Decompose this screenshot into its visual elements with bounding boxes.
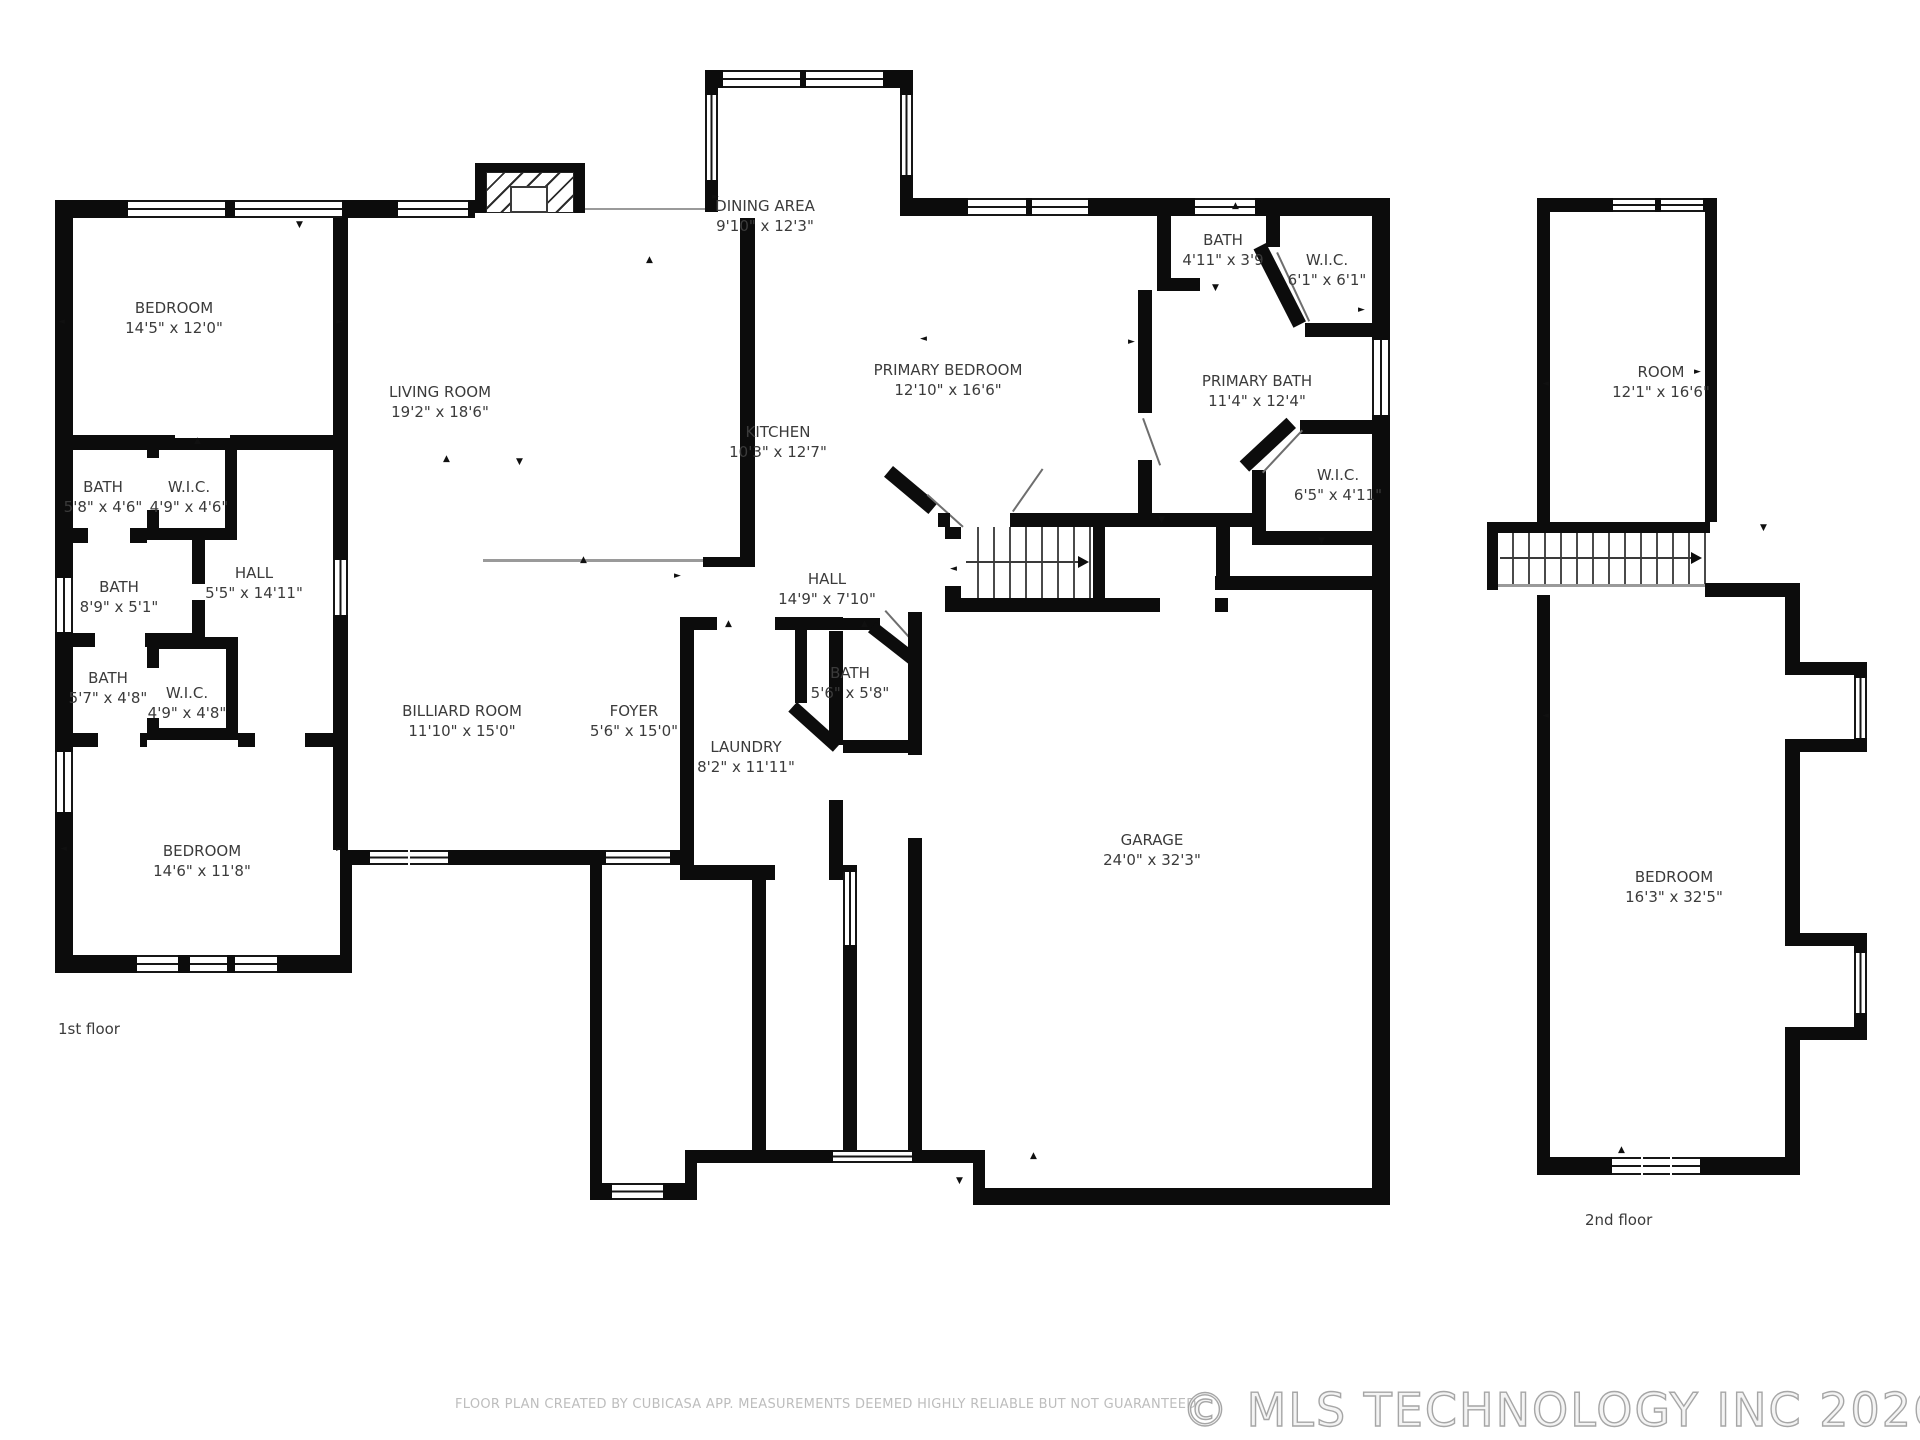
room-label-foyer: FOYER5'6" x 15'0" <box>590 701 678 741</box>
room-label-dining: DINING AREA9'10" x 12'3" <box>715 196 815 236</box>
stair-direction-arrow <box>1078 556 1089 568</box>
dimension-marker: ► <box>336 318 343 327</box>
dimension-marker: ▼ <box>1318 537 1325 546</box>
room-label-living: LIVING ROOM19'2" x 18'6" <box>389 382 491 422</box>
wall-segment <box>1157 278 1200 291</box>
wall-segment <box>1537 1157 1612 1175</box>
window <box>1372 340 1390 415</box>
window <box>1195 198 1255 216</box>
dimension-marker: ► <box>1128 338 1135 347</box>
wall-segment <box>590 1183 612 1200</box>
wall-segment <box>1088 198 1195 216</box>
stair-direction-line <box>966 561 1080 563</box>
wall-segment <box>55 200 128 218</box>
window <box>410 850 448 865</box>
wall-segment <box>140 733 147 747</box>
wall-segment <box>1854 662 1867 678</box>
room-label-kitchen: KITCHEN10'3" x 12'7" <box>729 422 827 462</box>
wall-segment <box>1215 576 1372 590</box>
room-label-primary-bedroom: PRIMARY BEDROOM12'10" x 16'6" <box>874 360 1023 400</box>
window <box>190 955 227 973</box>
wall-segment <box>55 733 98 747</box>
wall-segment <box>795 618 807 703</box>
wall-segment <box>835 865 843 880</box>
window <box>806 70 883 88</box>
wall-segment <box>1700 1157 1800 1175</box>
plan-line <box>585 208 705 210</box>
wall-segment <box>938 513 950 527</box>
stair-direction-line <box>1500 557 1693 559</box>
dimension-marker: ▼ <box>1158 516 1165 525</box>
wall-segment <box>703 557 755 567</box>
fireplace-firebox <box>510 186 548 213</box>
dimension-marker: ▲ <box>194 437 201 446</box>
wall-segment <box>340 850 370 865</box>
door-opening <box>333 560 348 615</box>
room-label-billiard: BILLIARD ROOM11'10" x 15'0" <box>402 701 522 741</box>
room-label-laundry: LAUNDRY8'2" x 11'11" <box>697 737 795 777</box>
dimension-marker: ▼ <box>956 1177 963 1186</box>
window <box>55 752 73 812</box>
window <box>968 198 1026 216</box>
wall-segment <box>1785 752 1800 933</box>
room-label-garage: GARAGE24'0" x 32'3" <box>1103 830 1201 870</box>
room-label-bedroom-tl: BEDROOM14'5" x 12'0" <box>125 298 223 338</box>
wall-segment <box>227 955 235 973</box>
wall-segment <box>192 540 205 584</box>
plan-line <box>483 559 711 562</box>
wall-segment <box>1487 522 1710 533</box>
window <box>1854 953 1867 1013</box>
room-label-bath-bl: BATH5'7" x 4'8" <box>69 668 148 708</box>
wall-segment <box>55 528 88 543</box>
wall-segment <box>147 637 159 668</box>
room-label-wic-bl: W.I.C.4'9" x 4'8" <box>148 683 227 723</box>
first-floor-label: 1st floor <box>58 1020 120 1038</box>
room-label-hall-center: HALL14'9" x 7'10" <box>778 569 876 609</box>
wall-segment <box>147 728 238 740</box>
wall-segment <box>883 70 913 88</box>
window <box>723 70 800 88</box>
window <box>370 850 408 865</box>
copyright-watermark: © MLS TECHNOLOGY INC 2026 <box>1182 1383 1920 1437</box>
wall-segment <box>1785 739 1867 752</box>
window <box>137 955 178 973</box>
wall-segment <box>230 435 348 450</box>
wall-segment <box>468 200 475 218</box>
wall-segment <box>1785 597 1800 662</box>
room-label-room2: ROOM12'1" x 16'6" <box>1612 362 1710 402</box>
wall-segment <box>147 438 237 450</box>
wall-segment <box>1703 198 1717 212</box>
window <box>235 200 342 218</box>
wall-segment <box>1215 598 1228 612</box>
wall-segment <box>1705 583 1800 597</box>
wall-segment <box>1266 198 1280 247</box>
dimension-marker: ▼ <box>516 458 523 467</box>
disclaimer-text: FLOOR PLAN CREATED BY CUBICASA APP. MEAS… <box>455 1397 1197 1412</box>
window <box>1661 198 1703 212</box>
wall-segment <box>705 70 723 88</box>
second-floor-label: 2nd floor <box>1585 1211 1652 1229</box>
wall-segment <box>705 88 718 95</box>
room-label-primary-bath: PRIMARY BATH11'4" x 12'4" <box>1202 371 1312 411</box>
wall-segment <box>1138 290 1152 413</box>
window <box>1672 1157 1700 1175</box>
wall-segment <box>130 528 147 543</box>
wall-segment <box>226 637 238 740</box>
wall-segment <box>1093 527 1105 598</box>
wall-segment <box>147 528 237 540</box>
wall-segment <box>55 200 73 578</box>
wall-segment <box>945 527 961 539</box>
window <box>235 955 277 973</box>
room-label-bedroom2: BEDROOM16'3" x 32'5" <box>1625 867 1723 907</box>
wall-segment <box>448 850 606 865</box>
wall-segment <box>1305 323 1388 337</box>
window <box>1613 198 1655 212</box>
wall-segment <box>680 617 717 630</box>
window <box>900 95 913 175</box>
dimension-marker: ▲ <box>443 455 450 464</box>
dimension-marker: ► <box>674 572 681 581</box>
wall-segment <box>973 1188 1390 1205</box>
dimension-marker: ▲ <box>725 620 732 629</box>
wall-segment <box>55 812 73 973</box>
window <box>1854 678 1867 738</box>
dimension-marker: ▲ <box>646 256 653 265</box>
wall-segment <box>1785 1027 1867 1040</box>
dimension-marker: ► <box>1358 306 1365 315</box>
wall-segment <box>1487 533 1498 590</box>
room-label-wic-tr: W.I.C.6'1" x 6'1" <box>1288 250 1367 290</box>
window <box>705 95 718 180</box>
dimension-marker: ▲ <box>1030 1152 1037 1161</box>
dimension-marker: ▼ <box>1212 284 1219 293</box>
wall-segment <box>1138 460 1152 513</box>
dimension-marker: ▲ <box>580 556 587 565</box>
window <box>55 578 73 632</box>
wall-segment <box>225 200 235 218</box>
window <box>1032 198 1088 216</box>
wall-segment <box>1537 595 1550 1171</box>
door-swing <box>1012 468 1043 512</box>
wall-segment <box>277 955 352 973</box>
wall-segment <box>147 438 159 458</box>
wall-segment <box>685 1150 833 1163</box>
stair-direction-arrow <box>1691 552 1702 564</box>
window <box>128 200 225 218</box>
window <box>612 1183 663 1200</box>
dimension-marker: ► <box>336 845 343 854</box>
wall-segment <box>945 586 961 598</box>
wall-segment <box>680 865 775 880</box>
room-label-hall-left: HALL5'5" x 14'11" <box>205 563 303 603</box>
room-label-bath-mid: BATH8'9" x 5'1" <box>80 577 159 617</box>
wall-segment <box>342 200 398 218</box>
wall-segment <box>908 838 922 1153</box>
room-label-wic-tl: W.I.C.4'9" x 4'6" <box>150 477 229 517</box>
wall-segment <box>680 617 694 880</box>
wall-segment <box>1300 420 1388 434</box>
wall-segment <box>178 955 190 973</box>
dimension-marker: ◄ <box>920 335 927 344</box>
dimension-marker: ◄ <box>1542 380 1549 389</box>
wall-segment <box>908 612 922 755</box>
window <box>1612 1157 1641 1175</box>
wall-segment <box>843 945 857 1150</box>
wall-segment <box>590 865 602 1200</box>
wall-segment <box>884 466 937 514</box>
wall-segment <box>1372 216 1390 340</box>
window <box>843 872 857 945</box>
wall-segment <box>55 633 95 647</box>
wall-segment <box>900 88 913 95</box>
dimension-marker: ▲ <box>861 620 868 629</box>
window <box>606 850 670 865</box>
dimension-marker: ▼ <box>1760 524 1767 533</box>
floor-plan-canvas: ▼ ◄ ► ► ▲ ▲ ▼ ▲ ► ◄ ◄ ► ▲ ▼ ► ▼ ▼ ▲ ▲ ▲ … <box>0 0 1920 1440</box>
wall-segment <box>305 733 348 747</box>
wall-segment <box>147 637 238 649</box>
room-label-bath-center: BATH5'6" x 5'8" <box>811 663 890 703</box>
wall-segment <box>1010 513 1252 527</box>
wall-segment <box>55 955 137 973</box>
dimension-marker: ◄ <box>58 318 65 327</box>
door-swing <box>1142 418 1161 466</box>
dimension-marker: ▲ <box>1232 202 1239 211</box>
dimension-marker: ◄ <box>1542 712 1549 721</box>
window <box>1643 1157 1670 1175</box>
wall-segment <box>843 740 918 753</box>
room-label-bath-tl: BATH5'8" x 4'6" <box>64 477 143 517</box>
window <box>398 200 468 218</box>
room-label-wic-mid: W.I.C.6'5" x 4'11" <box>1294 465 1382 505</box>
wall-segment <box>900 198 968 216</box>
wall-segment <box>752 880 766 1150</box>
plan-line <box>1498 584 1710 587</box>
wall-segment <box>333 218 348 560</box>
wall-segment <box>238 733 255 747</box>
wall-segment <box>1537 198 1550 522</box>
wall-segment <box>1854 933 1867 953</box>
wall-segment <box>1785 1040 1800 1171</box>
room-label-bedroom-bl: BEDROOM14'6" x 11'8" <box>153 841 251 881</box>
dimension-marker: ◄ <box>950 565 957 574</box>
wall-segment <box>740 218 755 557</box>
window <box>833 1150 912 1163</box>
wall-segment <box>1157 198 1171 290</box>
dimension-marker: ▲ <box>1618 1146 1625 1155</box>
dimension-marker: ▼ <box>296 221 303 230</box>
room-label-bath-tr: BATH4'11" x 3'9 <box>1182 230 1263 270</box>
wall-segment <box>843 865 857 872</box>
dimension-marker: ◄ <box>60 845 67 854</box>
wall-segment <box>945 598 1160 612</box>
